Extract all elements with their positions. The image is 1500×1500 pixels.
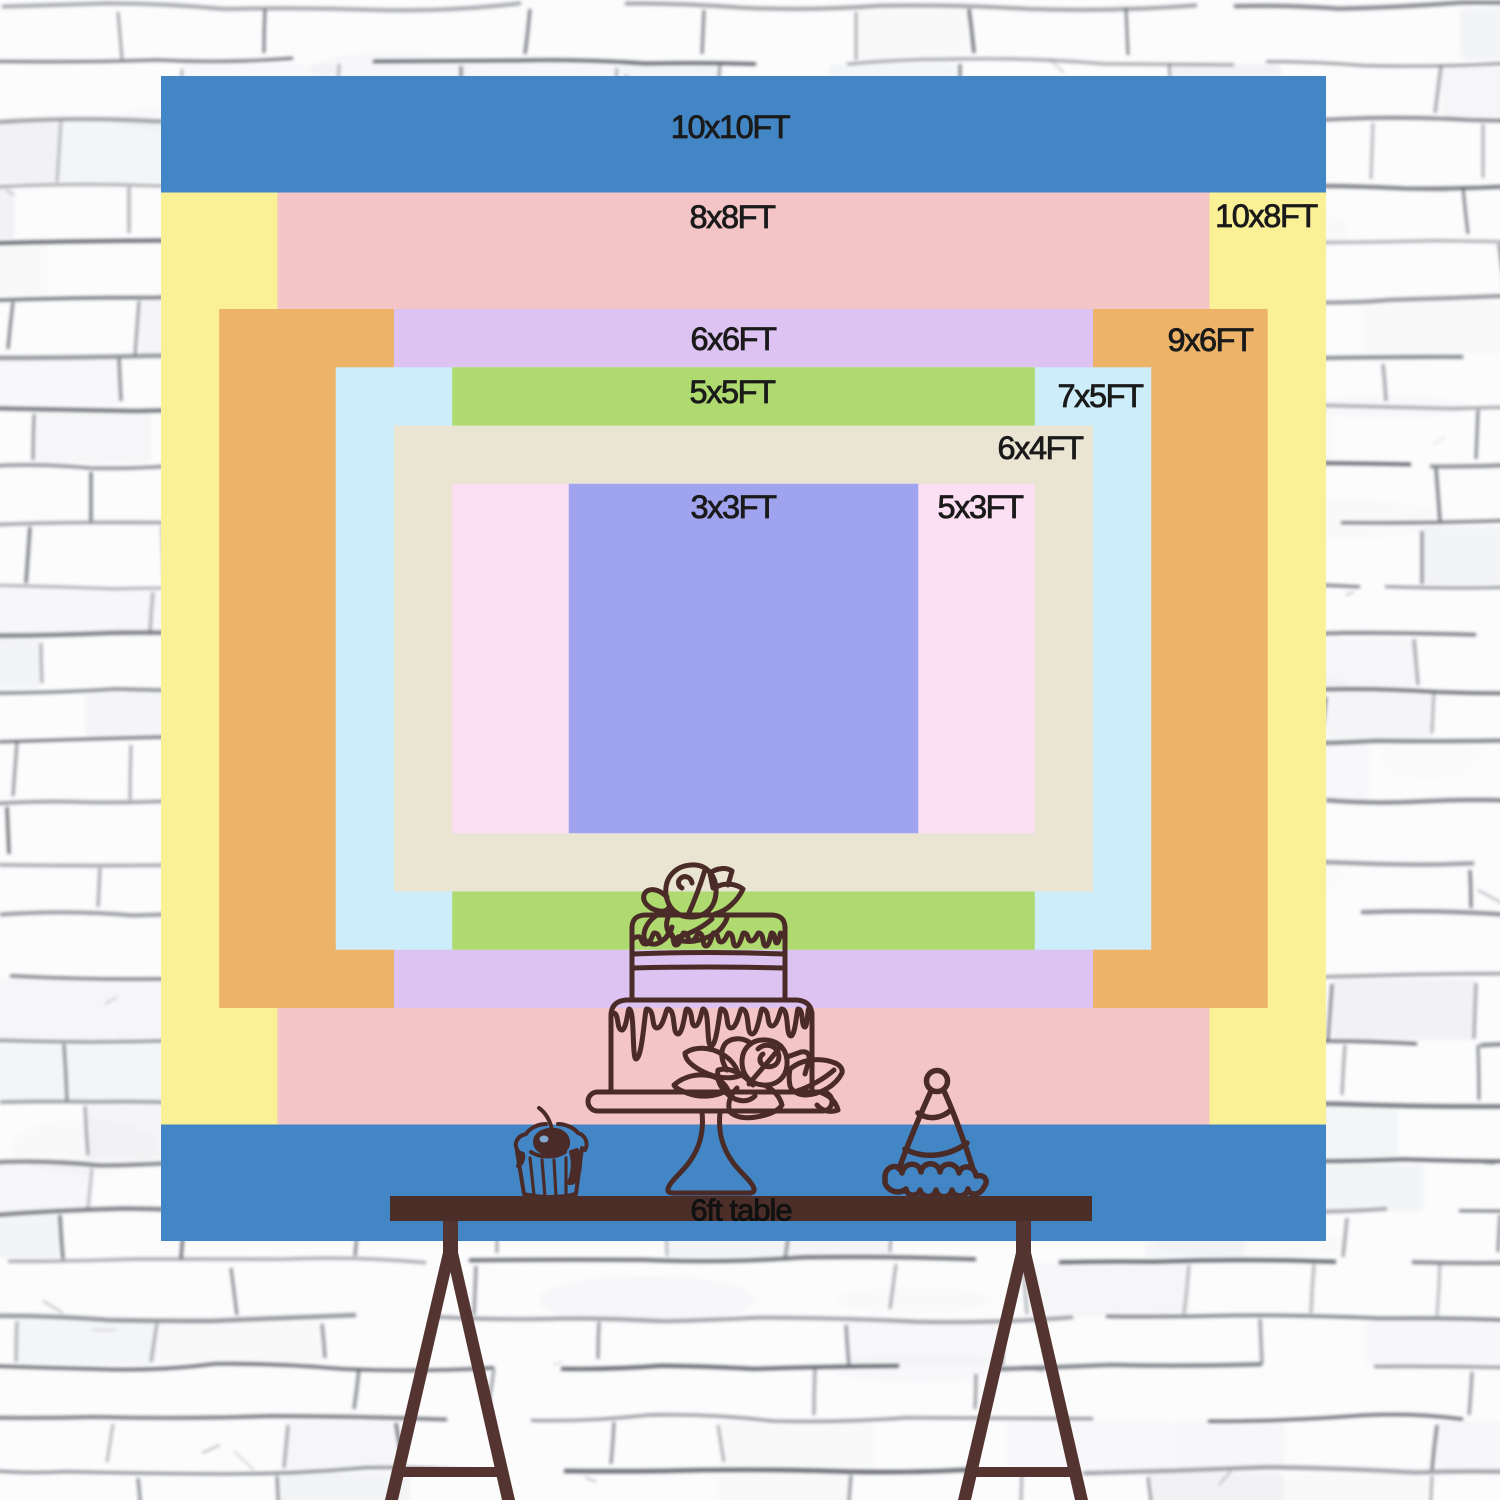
svg-text:6x6FT: 6x6FT: [690, 321, 777, 357]
svg-text:10x10FT: 10x10FT: [671, 109, 791, 145]
svg-text:6x4FT: 6x4FT: [997, 430, 1084, 466]
svg-text:6ft table: 6ft table: [690, 1193, 791, 1228]
svg-text:5x3FT: 5x3FT: [937, 489, 1024, 525]
svg-text:3x3FT: 3x3FT: [690, 489, 777, 525]
svg-text:9x6FT: 9x6FT: [1167, 322, 1254, 358]
svg-text:5x5FT: 5x5FT: [689, 374, 776, 410]
svg-text:8x8FT: 8x8FT: [689, 199, 776, 235]
svg-text:10x8FT: 10x8FT: [1215, 198, 1318, 234]
svg-text:7x5FT: 7x5FT: [1057, 378, 1144, 414]
